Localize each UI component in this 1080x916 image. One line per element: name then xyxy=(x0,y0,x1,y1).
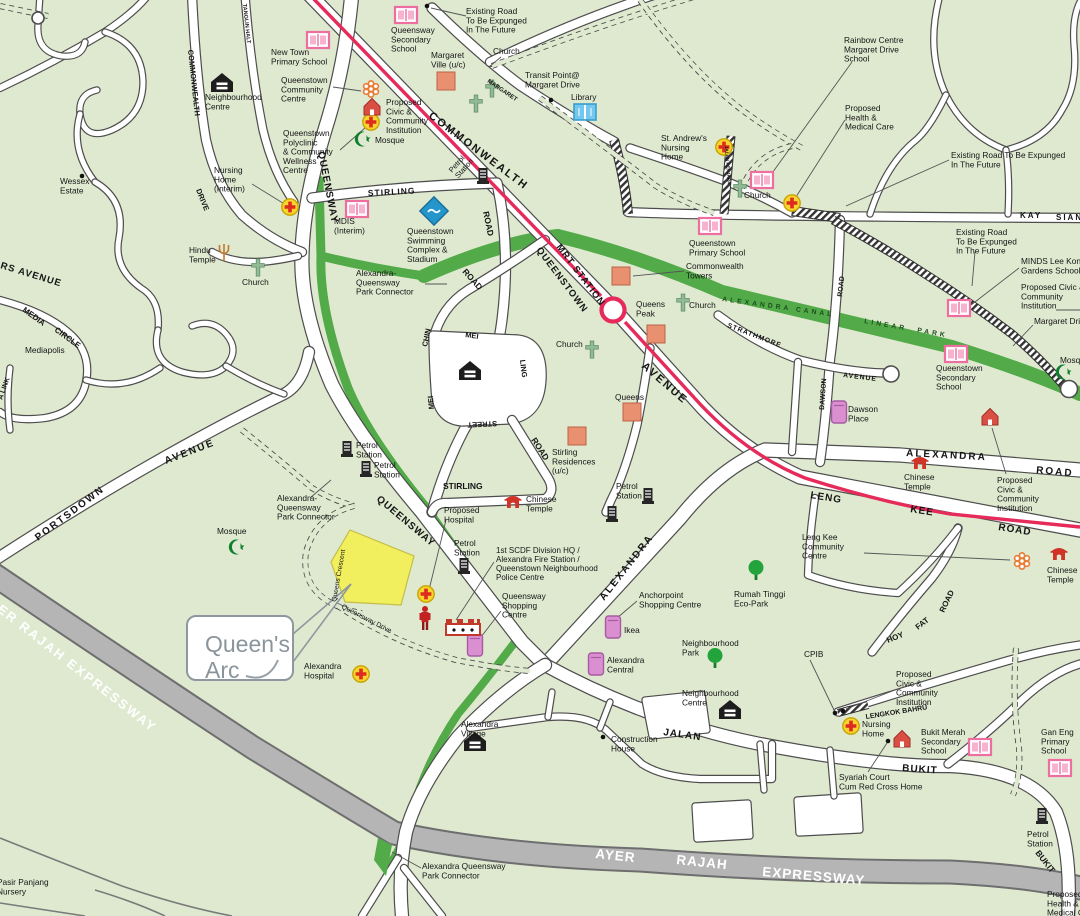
label-expunged-road-top-right-line-1: In The Future xyxy=(951,159,1001,169)
nursing-home-lengkok-redcross-icon xyxy=(843,718,859,734)
label-stirling-residences-line-2: (u/c) xyxy=(552,466,569,476)
expunged-dot-top-dot-icon xyxy=(425,4,430,9)
location-map: WessexEstateNeighbourhoodCentreNew TownP… xyxy=(0,0,1080,916)
label-margaret-drive-callout-line-0: Margaret Drive xyxy=(1034,316,1080,326)
new-town-primary-school-school-icon xyxy=(307,32,329,48)
bukit-merah-secondary-school-school-icon xyxy=(969,739,991,755)
label-queenstown-primary-school-line-1: Primary School xyxy=(689,247,745,257)
label-rainbow-centre-school-line-2: School xyxy=(844,54,870,64)
label-chinese-temple-stirling-line-1: Temple xyxy=(526,503,553,513)
petrol-bukit-petrol-icon xyxy=(1036,808,1048,824)
label-cpib-line-0: CPIB xyxy=(804,649,824,659)
label-road-mei-h-line-0: MEI xyxy=(465,330,479,341)
label-church-margaret-top-line-0: Church xyxy=(493,46,520,56)
label-scdf-division-hq-line-2: Queenstown Neighbourhood xyxy=(496,564,598,573)
label-queenstown-polyclinic-line-4: Centre xyxy=(283,165,308,175)
map-canvas: WessexEstateNeighbourhoodCentreNew TownP… xyxy=(0,0,1080,916)
transit-point-dot-dot-icon xyxy=(549,98,554,103)
minds-gardens-school-school-icon xyxy=(948,300,970,316)
label-church-margaret-top: Church xyxy=(493,46,520,56)
petrol-queensway-2-petrol-icon xyxy=(360,461,372,477)
alexandra-central-shop-icon xyxy=(589,653,604,675)
label-queens-arc-name-2-line-0: Arc xyxy=(205,657,240,683)
label-petrol-station-2-line-1: Station xyxy=(374,469,400,479)
label-margaret-ville: MargaretVille (u/c) xyxy=(431,50,466,69)
label-scdf-division-hq-line-0: 1st SCDF Division HQ / xyxy=(496,546,580,555)
label-queens-condo: Queens xyxy=(615,392,644,402)
label-minds-gardens-school-line-1: Gardens School xyxy=(1021,265,1080,275)
label-road-stirling-low-line-0: STIRLING xyxy=(443,481,483,491)
road xyxy=(797,796,860,833)
queenstown-primary-school-school-icon xyxy=(699,218,721,234)
label-park-connector-mid-line-2: Park Connector xyxy=(277,512,335,522)
label-proposed-health-medical-br-line-2: Medical Care xyxy=(1047,908,1080,916)
label-new-town-primary-school-line-1: Primary School xyxy=(271,56,327,66)
petrol-commonwealth-petrol-icon xyxy=(477,168,489,184)
label-church-canal: Church xyxy=(689,300,716,310)
label-queenstown-secondary-school-line-2: School xyxy=(936,382,962,392)
label-pasir-panjang-nursery-line-1: Nursery xyxy=(0,886,27,896)
queens-condo-condo-icon xyxy=(623,403,641,421)
label-alexandra-village-line-1: Village xyxy=(461,728,486,738)
petrol-alexandra-2-petrol-icon xyxy=(642,488,654,504)
label-chinese-temple-alexandra: ChineseTemple xyxy=(904,472,935,491)
road-mei-ling-street xyxy=(433,335,542,422)
label-queens-peak-line-1: Peak xyxy=(636,308,656,318)
label-church-commonwealth: Church xyxy=(242,277,269,287)
label-petrol-station-bukit-line-1: Station xyxy=(1027,838,1053,848)
road-loop xyxy=(32,12,44,24)
label-mosque-portsdown-line-0: Mosque xyxy=(217,526,247,536)
label-mosque-queenstown: Mosque xyxy=(375,135,405,145)
label-anchorpoint-shopping-centre-line-1: Shopping Centre xyxy=(639,599,702,609)
label-mdis-interim-line-1: (Interim) xyxy=(334,225,365,235)
petrol-queensway-mid-petrol-icon xyxy=(458,558,470,574)
label-construction-house-line-1: House xyxy=(611,743,635,753)
label-ikea-line-0: Ikea xyxy=(624,625,640,635)
label-library: Library xyxy=(571,92,597,102)
lengkok-civic-dot-dot-icon xyxy=(841,709,846,714)
label-transit-point-margaret-drive-line-1: Margaret Drive xyxy=(525,79,580,89)
label-mediapolis-line-0: Mediapolis xyxy=(25,345,65,355)
label-queens-arc-name-2: Arc xyxy=(205,657,240,683)
label-park-connector-upper-line-2: Park Connector xyxy=(356,287,414,297)
label-road-street: STREET xyxy=(467,419,497,430)
label-hindu-temple-line-1: Temple xyxy=(189,254,216,264)
syariah-dot-dot-icon xyxy=(886,739,891,744)
label-road-mei-h: MEI xyxy=(465,330,479,341)
label-cpib: CPIB xyxy=(804,649,824,659)
queens-peak-condo-icon xyxy=(647,325,665,343)
alexandra-hospital-redcross-icon xyxy=(353,666,369,682)
label-proposed-hospital-line-1: Hospital xyxy=(444,514,474,524)
label-chinese-temple-alexandra-line-1: Temple xyxy=(904,481,931,491)
label-mosque-portsdown: Mosque xyxy=(217,526,247,536)
label-church-mid: Church xyxy=(556,339,583,349)
label-expunged-road-mid-right-line-2: In The Future xyxy=(956,246,1006,256)
label-neighbourhood-centre-commonwealth-line-1: Centre xyxy=(205,101,230,111)
label-road-siang-line-0: SIANG xyxy=(1056,213,1080,222)
label-road-siang: SIANG xyxy=(1056,213,1080,222)
label-dawson-place-line-1: Place xyxy=(848,413,869,423)
label-petrol-station-queensway-mid-line-1: Station xyxy=(454,547,480,557)
label-road-stirling-low: STIRLING xyxy=(443,481,483,491)
nursing-home-interim-redcross-icon xyxy=(282,199,298,215)
margaret-ville-condo-icon xyxy=(437,72,455,90)
label-queens-condo-line-0: Queens xyxy=(615,392,644,402)
road-loop xyxy=(883,366,899,382)
civic-flower-leng-kee-flower-icon xyxy=(1015,553,1030,569)
gan-eng-primary-school-school-icon xyxy=(1049,760,1071,776)
label-alexandra-hospital-line-1: Hospital xyxy=(304,670,334,680)
label-gan-eng-primary-school-line-2: School xyxy=(1041,746,1067,756)
label-scdf-division-hq-line-3: Police Centre xyxy=(496,573,545,582)
label-queenstown-community-centre-line-2: Centre xyxy=(281,94,306,104)
mdis-school-icon xyxy=(346,201,368,217)
label-queens-arc-name-1: Queen's xyxy=(205,631,290,657)
label-proposed-civic-queenstown-line-3: Institution xyxy=(386,125,422,135)
label-commonwealth-towers-line-1: Towers xyxy=(686,270,712,280)
civic-flower-queenstown-flower-icon xyxy=(364,81,379,97)
label-proposed-civic-top-right-line-2: Institution xyxy=(1021,301,1057,311)
label-petrol-station-1-line-1: Station xyxy=(356,449,382,459)
label-margaret-drive-callout: Margaret Drive xyxy=(1034,316,1080,326)
label-queenstown-swimming-complex-line-3: Stadium xyxy=(407,254,438,264)
library-library-icon xyxy=(574,104,596,120)
label-minds-gardens-school: MINDS Lee Kong ChianGardens School xyxy=(1021,256,1080,275)
queensway-secondary-school-top-school-icon xyxy=(395,7,417,23)
label-road-street-line-0: STREET xyxy=(467,419,497,430)
label-road-mei-v: MEI xyxy=(426,396,436,410)
label-alexandra-central-line-1: Central xyxy=(607,664,634,674)
label-rumah-tinggi-eco-park-line-1: Eco-Park xyxy=(734,598,769,608)
cpib-dot-dot-icon xyxy=(833,711,838,716)
label-library-line-0: Library xyxy=(571,92,597,102)
label-church-penjara-line-0: Church xyxy=(744,190,771,200)
label-st-andrews-nursing-home-line-2: Home xyxy=(661,152,684,162)
label-scdf-division-hq-line-1: Alexandra Fire Station / xyxy=(496,555,580,564)
label-neighbourhood-park-line-1: Park xyxy=(682,647,700,657)
label-transit-point-margaret-drive: Transit Point@Margaret Drive xyxy=(525,70,580,89)
label-mosque-right-edge: Mosque xyxy=(1060,355,1080,365)
road xyxy=(8,368,10,430)
proposed-hospital-redcross-icon xyxy=(418,586,434,602)
label-mediapolis: Mediapolis xyxy=(25,345,65,355)
label-ikea: Ikea xyxy=(624,625,640,635)
commonwealth-towers-condo-icon xyxy=(612,267,630,285)
road-loop xyxy=(1061,381,1078,398)
proposed-health-medical-redcross-icon xyxy=(784,195,800,211)
construction-house-dot-dot-icon xyxy=(601,735,606,740)
dawson-place-shop-icon xyxy=(832,401,847,423)
queenstown-secondary-school-school-icon xyxy=(945,346,967,362)
label-queensway-shopping-centre-line-2: Centre xyxy=(502,610,527,620)
label-bukit-merah-secondary-school-line-2: School xyxy=(921,746,947,756)
label-proposed-health-medical-top-line-2: Medical Care xyxy=(845,122,894,132)
label-mosque-right-edge-line-0: Mosque xyxy=(1060,355,1080,365)
queenstown-cc-clinic-redcross-icon xyxy=(363,114,379,130)
label-syariah-court-line-1: Cum Red Cross Home xyxy=(839,781,923,791)
label-queens-arc-name-1-line-0: Queen's xyxy=(205,631,290,657)
label-road-kay-line-0: KAY xyxy=(1020,211,1042,220)
label-petrol-station-alexandra-line-1: Station xyxy=(616,490,642,500)
label-proposed-civic-alexandra-line-3: Institution xyxy=(997,503,1033,513)
petrol-alexandra-1-petrol-icon xyxy=(606,506,618,522)
label-wessex-estate-line-1: Estate xyxy=(60,185,84,195)
stirling-residences-condo-icon xyxy=(568,427,586,445)
label-proposed-health-medical-br: ProposedHealth &Medical Care xyxy=(1047,889,1080,916)
label-nursing-home-interim-line-2: (Interim) xyxy=(214,184,245,194)
label-church-penjara: Church xyxy=(744,190,771,200)
anchorpoint-ikea-shop-icon xyxy=(606,616,621,638)
label-chinese-temple-right-edge: ChineseTemple xyxy=(1047,565,1078,584)
road xyxy=(695,803,750,839)
label-leng-kee-community-centre-line-2: Centre xyxy=(802,551,827,561)
label-church-mid-line-0: Church xyxy=(556,339,583,349)
rainbow-centre-school-school-icon xyxy=(751,172,773,188)
label-neighbourhood-centre-bukit-line-1: Centre xyxy=(682,697,707,707)
label-mosque-queenstown-line-0: Mosque xyxy=(375,135,405,145)
label-church-canal-line-0: Church xyxy=(689,300,716,310)
petrol-queensway-1-petrol-icon xyxy=(341,441,353,457)
label-expunged-road-top-left-line-2: In The Future xyxy=(466,25,516,35)
label-church-commonwealth-line-0: Church xyxy=(242,277,269,287)
label-road-mei-v-line-0: MEI xyxy=(426,396,436,410)
label-road-kay: KAY xyxy=(1020,211,1042,220)
queensway-shopping-centre-shop-icon xyxy=(468,634,483,656)
label-queensway-secondary-school-line-2: School xyxy=(391,44,417,54)
label-nursing-home-lengkok-line-1: Home xyxy=(862,728,885,738)
label-margaret-ville-line-1: Ville (u/c) xyxy=(431,59,466,69)
label-chinese-temple-right-edge-line-1: Temple xyxy=(1047,574,1074,584)
label-chinese-temple-stirling: ChineseTemple xyxy=(526,494,557,513)
label-park-connector-bottom-line-1: Park Connector xyxy=(422,870,480,880)
